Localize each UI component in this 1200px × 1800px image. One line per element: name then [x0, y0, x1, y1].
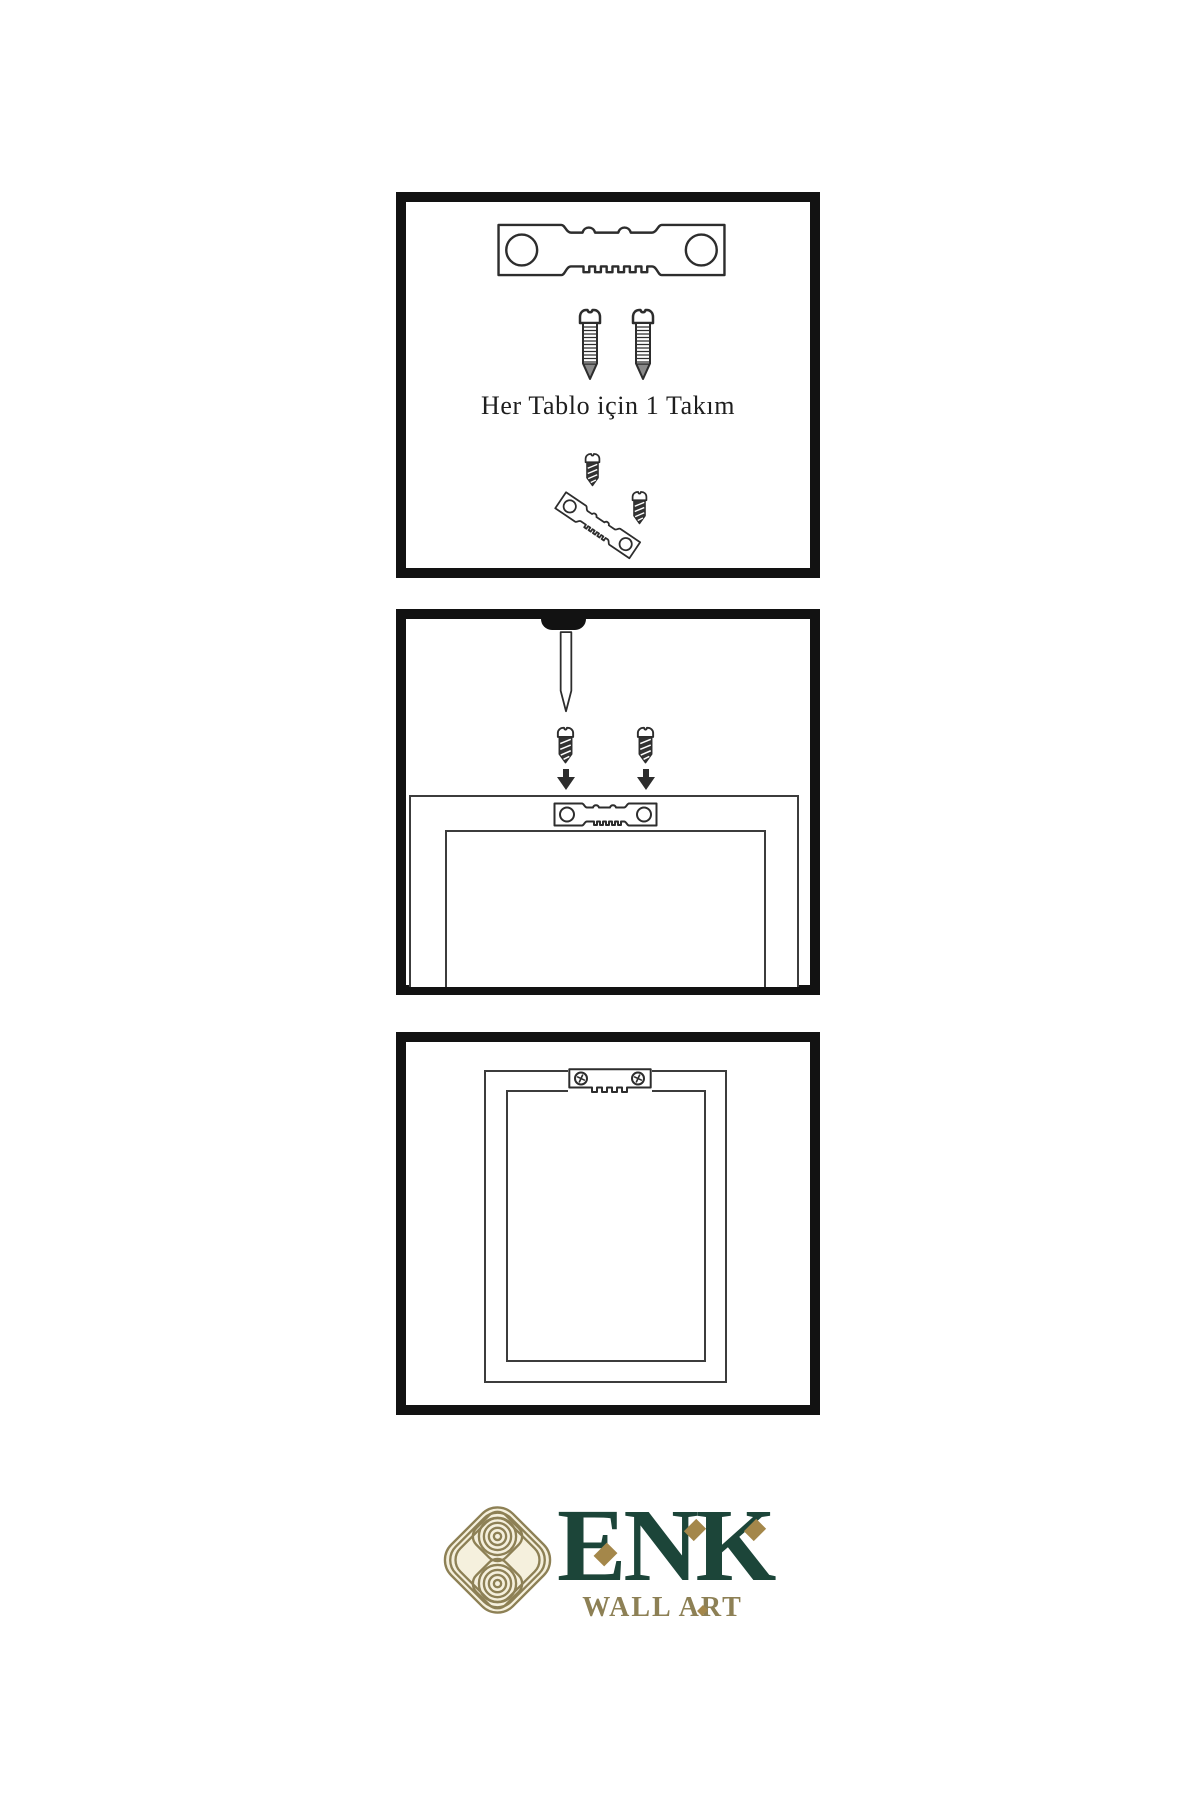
screw-icon — [628, 306, 658, 384]
brand-subtitle: WALL ART — [560, 1592, 765, 1624]
panel-mounting-steps — [396, 609, 820, 995]
sawtooth-hanger-icon — [493, 222, 730, 278]
mounted-sawtooth-hanger-icon — [568, 1068, 652, 1095]
dark-screw-icon — [555, 724, 576, 767]
dark-screw-icon — [630, 489, 649, 527]
arrow-down-icon — [637, 769, 655, 790]
brand-wordmark: ENK — [557, 1494, 773, 1598]
instruction-sheet: Her Tablo için 1 Takım — [0, 0, 1200, 1800]
dark-screw-icon — [583, 451, 602, 489]
tilted-sawtooth-hanger-icon — [553, 490, 642, 561]
dark-screw-icon — [635, 724, 656, 767]
kit-caption: Her Tablo için 1 Takım — [406, 391, 810, 421]
sawtooth-hanger-icon — [553, 802, 658, 827]
wall-nail-icon — [558, 627, 574, 719]
interlaced-knot-emblem-icon — [434, 1496, 561, 1624]
panel-parts-kit: Her Tablo için 1 Takım — [396, 192, 820, 578]
screw-icon — [575, 306, 605, 384]
panel-hung-frame — [396, 1032, 820, 1415]
frame-back-inner-outline — [445, 830, 766, 987]
arrow-down-icon — [557, 769, 575, 790]
frame-inner-outline — [506, 1090, 706, 1362]
